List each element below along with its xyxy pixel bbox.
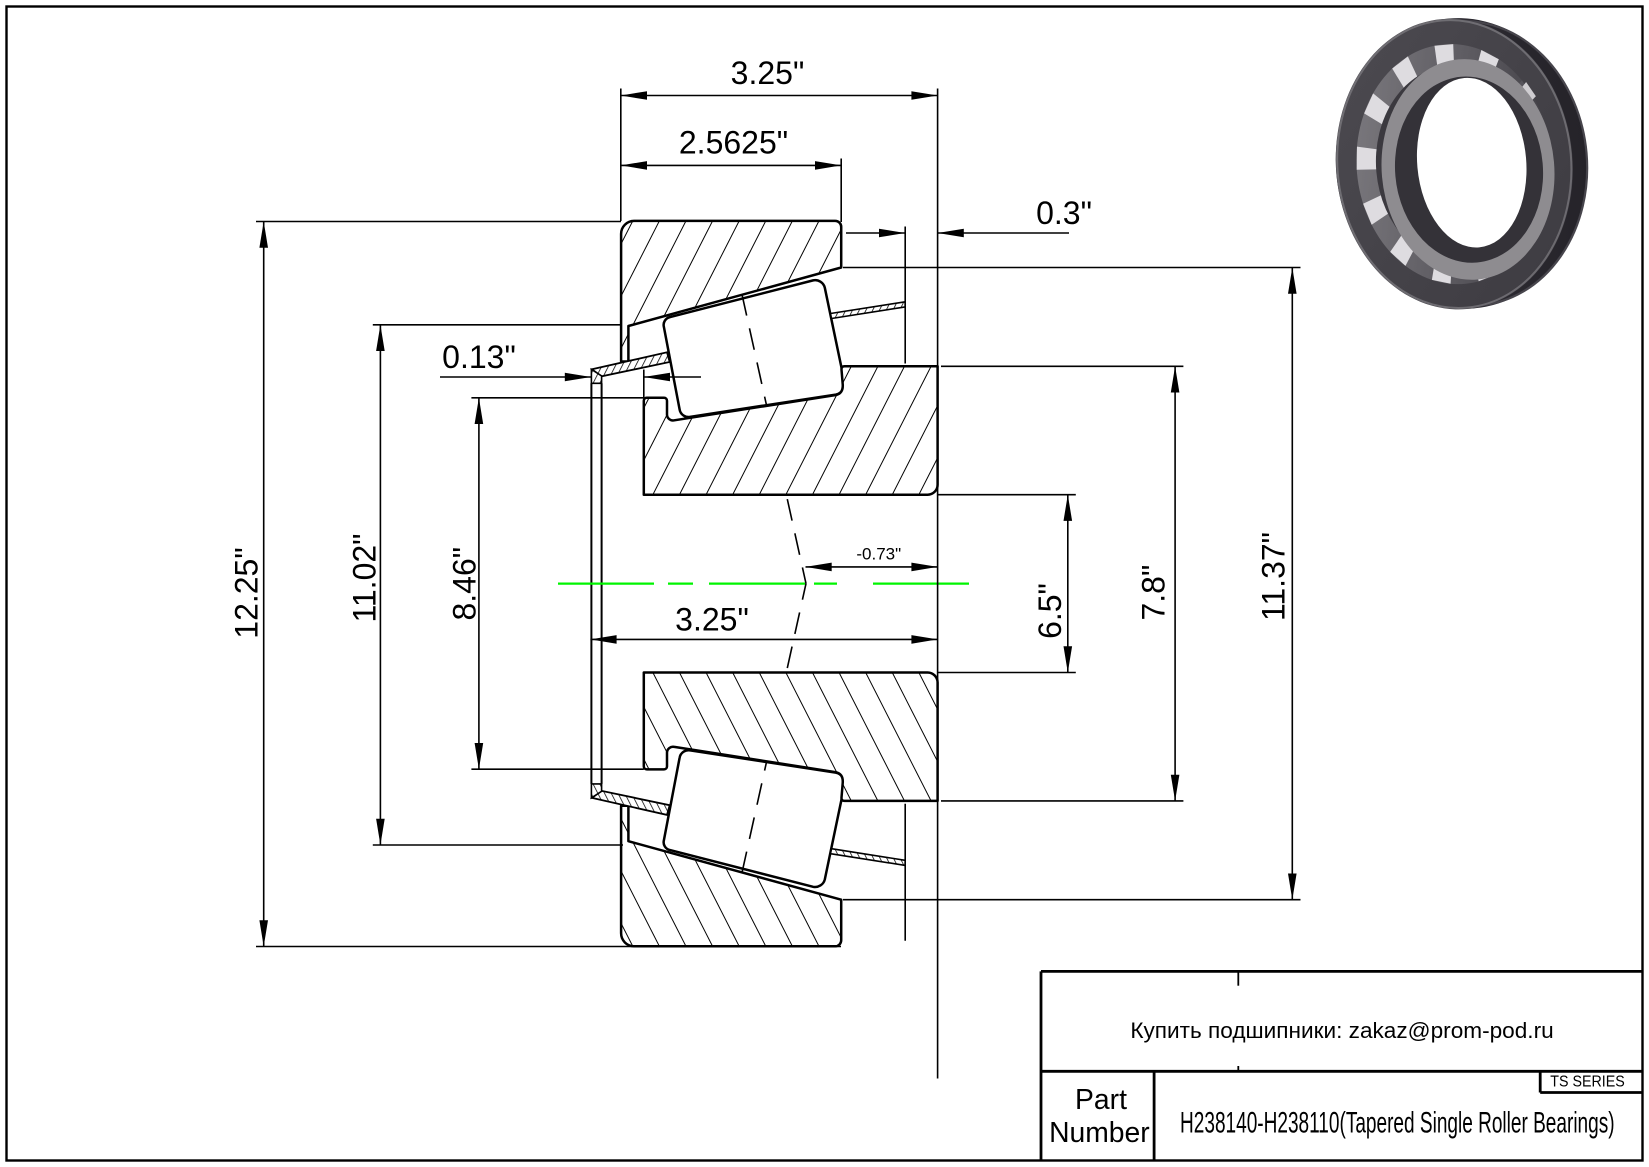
svg-text:8.46": 8.46"	[447, 547, 483, 621]
svg-text:2.5625": 2.5625"	[679, 125, 788, 161]
svg-text:11.02": 11.02"	[347, 533, 383, 622]
svg-text:Купить подшипники: zakaz@prom-: Купить подшипники: zakaz@prom-pod.ru	[1130, 1018, 1553, 1043]
svg-text:H238140-H238110(Tapered Single: H238140-H238110(Tapered Single Roller Be…	[1180, 1106, 1615, 1139]
svg-text:7.8": 7.8"	[1136, 565, 1172, 621]
svg-text:0.13": 0.13"	[442, 339, 516, 375]
svg-text:6.5": 6.5"	[1032, 583, 1068, 639]
svg-text:0.3": 0.3"	[1036, 195, 1092, 231]
svg-text:Number: Number	[1049, 1116, 1150, 1148]
svg-text:11.37": 11.37"	[1256, 532, 1292, 621]
svg-text:12.25": 12.25"	[229, 547, 265, 638]
svg-text:TS SERIES: TS SERIES	[1550, 1074, 1624, 1091]
svg-text:-0.73": -0.73"	[856, 545, 901, 564]
svg-text:3.25": 3.25"	[675, 602, 749, 638]
svg-text:Part: Part	[1075, 1083, 1127, 1115]
svg-text:3.25": 3.25"	[731, 55, 805, 91]
